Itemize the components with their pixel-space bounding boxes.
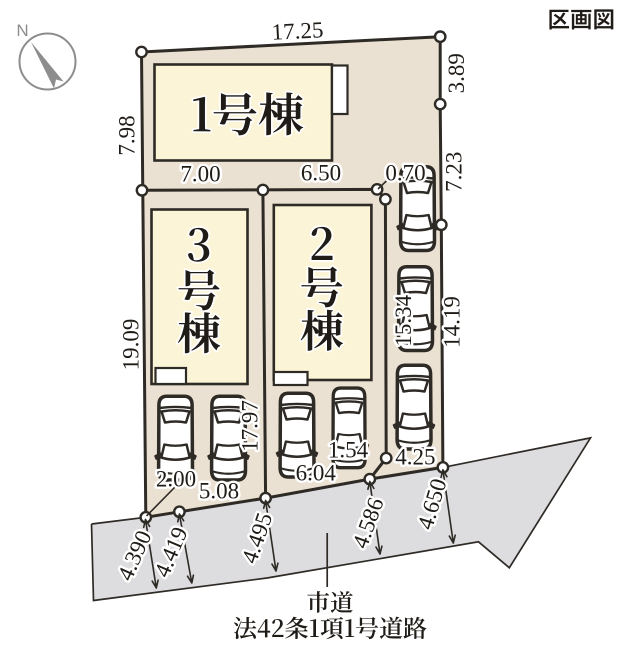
- svg-text:19.09: 19.09: [119, 319, 144, 371]
- svg-text:7.00: 7.00: [180, 162, 220, 187]
- svg-text:17.97: 17.97: [238, 400, 263, 452]
- svg-text:3.89: 3.89: [444, 53, 469, 93]
- svg-text:6.50: 6.50: [301, 161, 341, 186]
- svg-text:5.08: 5.08: [199, 479, 239, 504]
- svg-text:6.04: 6.04: [296, 461, 337, 486]
- svg-text:14.19: 14.19: [440, 296, 465, 348]
- svg-text:7.98: 7.98: [115, 115, 140, 155]
- svg-text:17.25: 17.25: [271, 17, 324, 45]
- svg-text:N: N: [16, 21, 28, 40]
- svg-text:0.70: 0.70: [385, 161, 425, 186]
- svg-text:15.34: 15.34: [391, 294, 416, 346]
- svg-text:7.23: 7.23: [441, 152, 466, 192]
- svg-text:2.00: 2.00: [156, 467, 196, 492]
- svg-text:4.25: 4.25: [395, 445, 435, 470]
- svg-text:1.54: 1.54: [328, 438, 369, 463]
